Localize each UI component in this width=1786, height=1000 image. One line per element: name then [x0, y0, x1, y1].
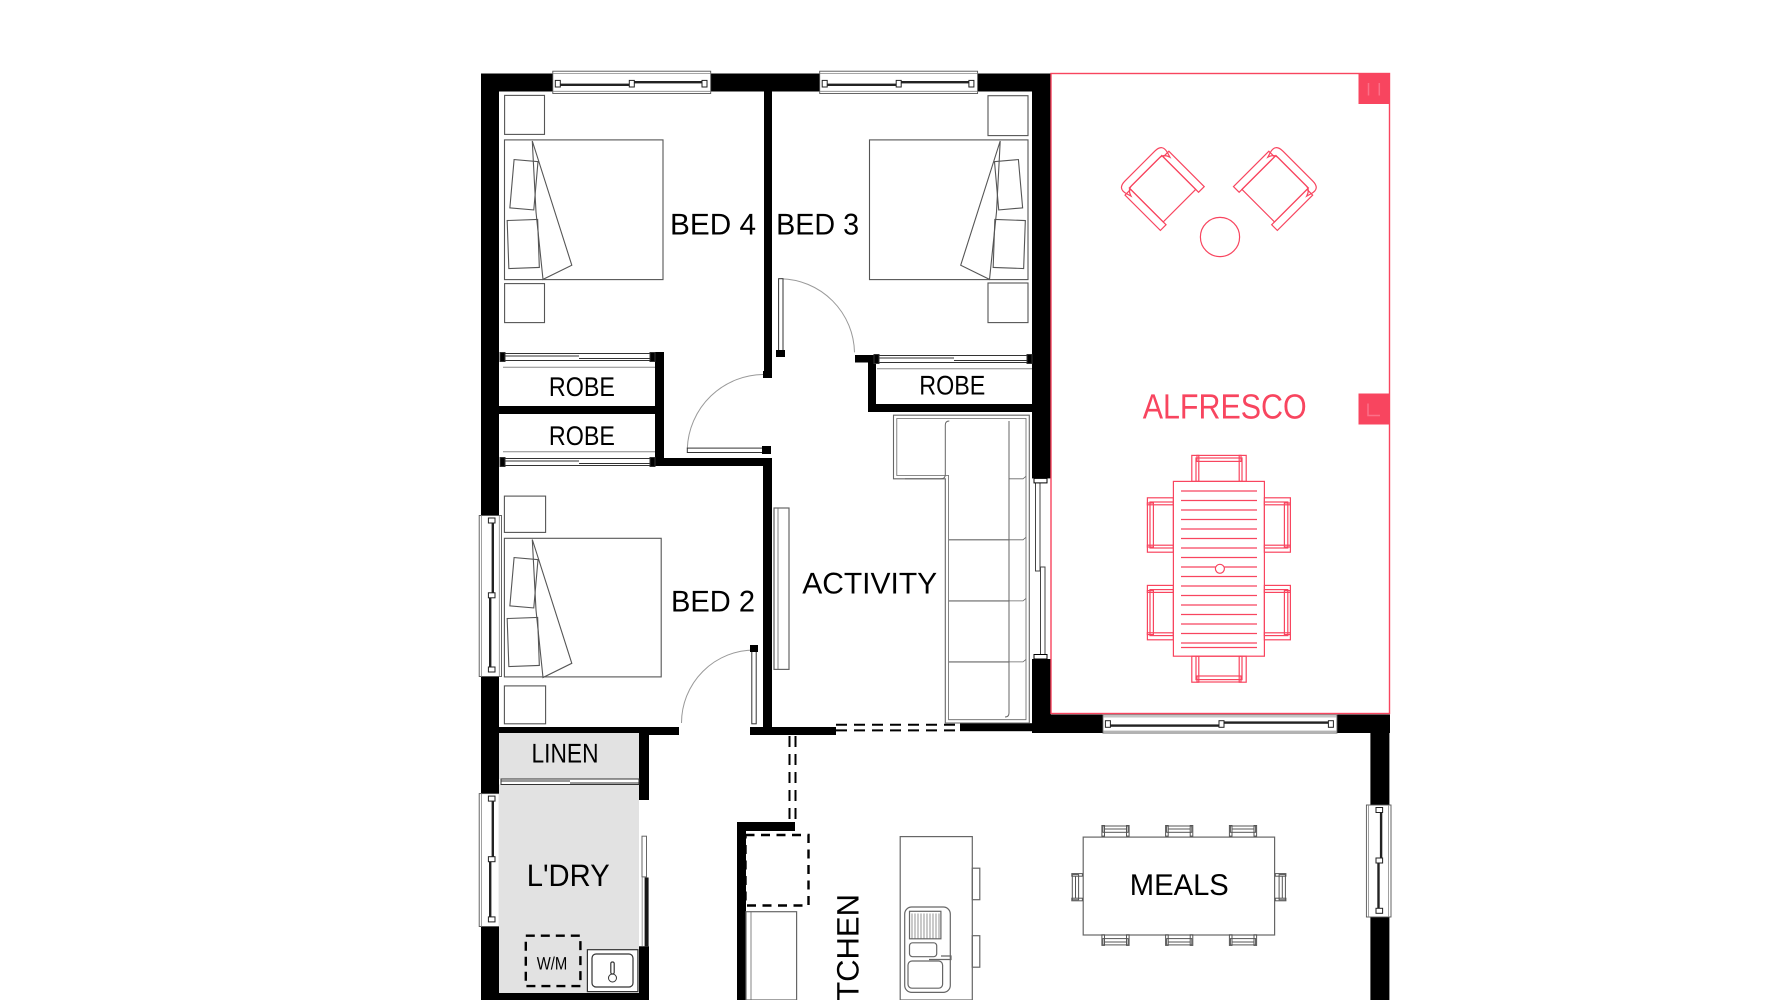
- svg-text:BED 3: BED 3: [776, 209, 859, 242]
- svg-text:LINEN: LINEN: [532, 738, 599, 768]
- svg-text:BED 4: BED 4: [670, 209, 756, 242]
- svg-text:BED 2: BED 2: [671, 586, 755, 619]
- svg-text:ALFRESCO: ALFRESCO: [1143, 388, 1307, 427]
- svg-text:KITCHEN: KITCHEN: [830, 894, 865, 1000]
- svg-text:MEALS: MEALS: [1130, 869, 1229, 902]
- svg-text:L'DRY: L'DRY: [527, 858, 610, 893]
- svg-text:ROBE: ROBE: [549, 421, 615, 451]
- svg-text:ROBE: ROBE: [919, 371, 985, 401]
- svg-text:ROBE: ROBE: [549, 372, 615, 402]
- svg-text:W/M: W/M: [537, 953, 568, 973]
- svg-text:ACTIVITY: ACTIVITY: [802, 568, 937, 601]
